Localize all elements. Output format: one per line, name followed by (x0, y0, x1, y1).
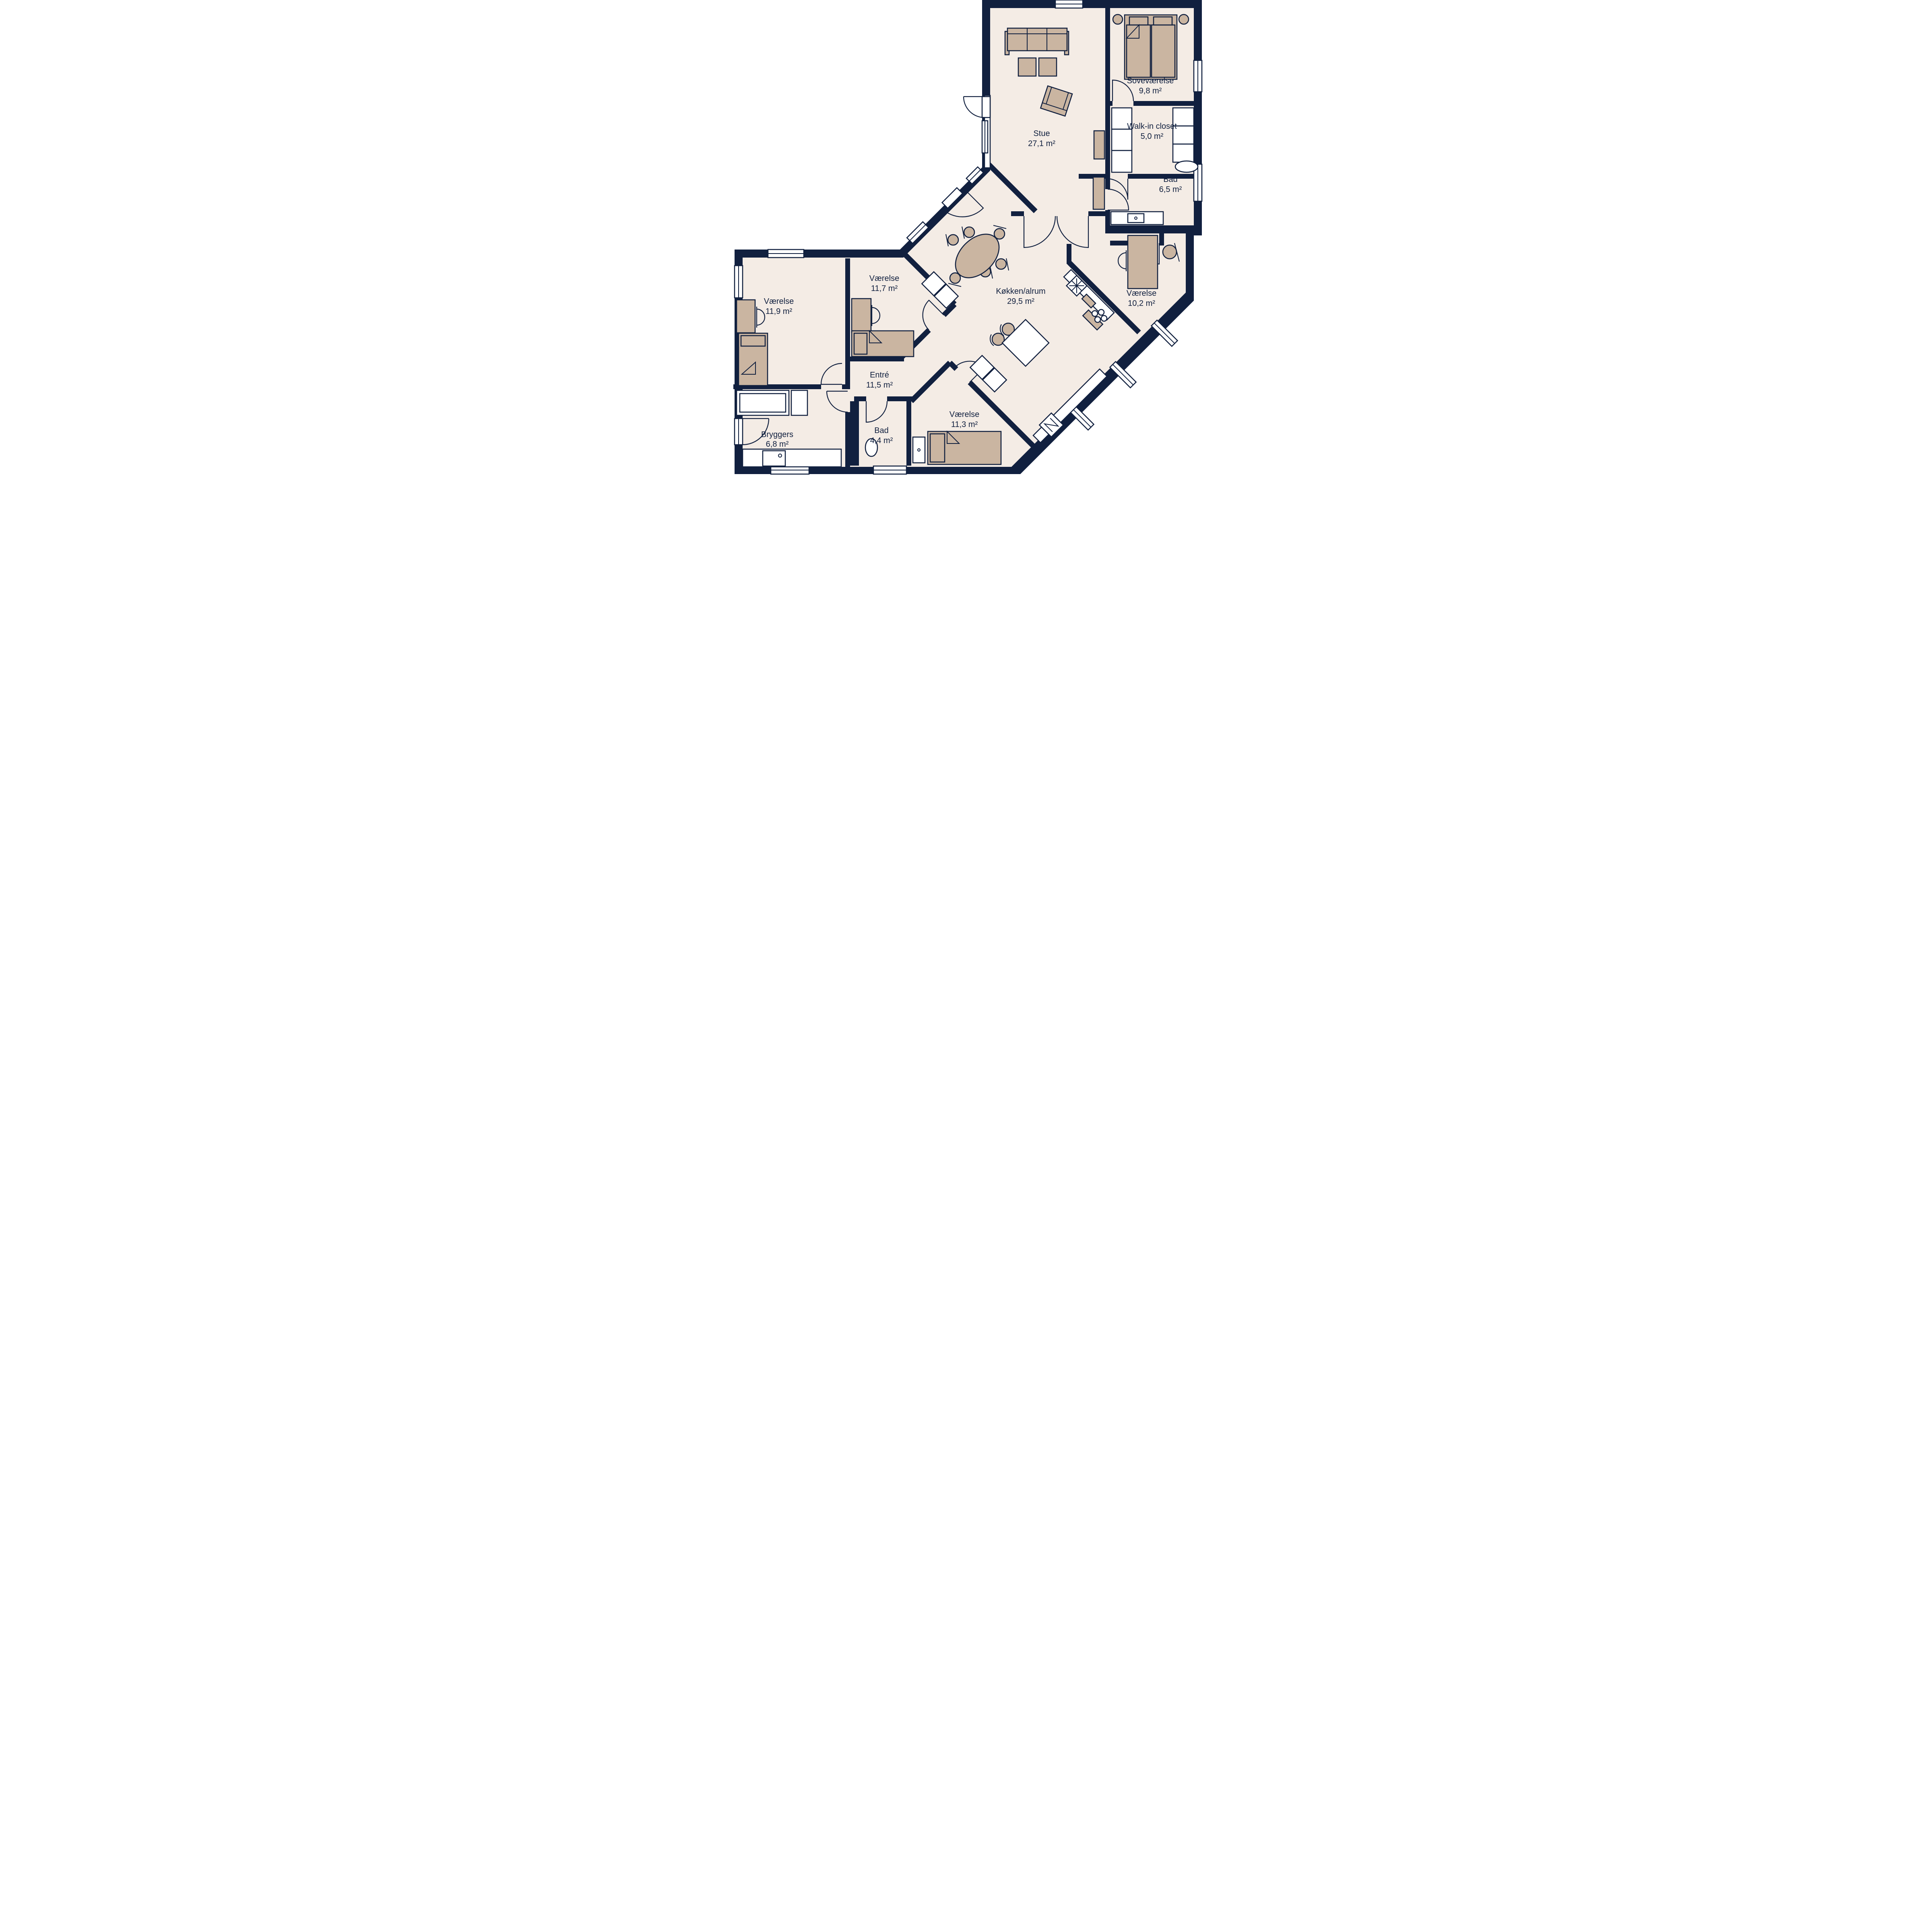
svg-text:11,9 m²: 11,9 m² (766, 307, 793, 316)
window-icon (735, 266, 743, 298)
pouf-symbol (1039, 58, 1057, 76)
svg-text:Bad: Bad (1163, 175, 1178, 184)
svg-text:5,0 m²: 5,0 m² (1141, 132, 1164, 141)
bed-symbol (928, 431, 1001, 464)
svg-text:Bryggers: Bryggers (761, 430, 793, 439)
washbasin-symbol (913, 437, 925, 463)
window-icon (982, 121, 988, 153)
wardrobe-symbol (737, 390, 807, 415)
svg-text:10,2 m²: 10,2 m² (1128, 299, 1155, 308)
window-icon (873, 466, 906, 474)
floor-plan: Stue27,1 m² Soveværelse9,8 m² Walk-in cl… (724, 0, 1207, 476)
svg-text:29,5 m²: 29,5 m² (1007, 297, 1034, 306)
laundry-counter-symbol (743, 449, 841, 467)
svg-text:9,8 m²: 9,8 m² (1139, 87, 1162, 95)
double-bed-symbol (1113, 14, 1189, 79)
cabinet-symbol (1094, 131, 1104, 159)
svg-text:Walk-in closet: Walk-in closet (1127, 122, 1177, 131)
svg-text:11,7 m²: 11,7 m² (871, 284, 898, 293)
vanity-symbol (1111, 212, 1163, 225)
floor-plan-page: Stue27,1 m² Soveværelse9,8 m² Walk-in cl… (0, 0, 1932, 476)
svg-text:Stue: Stue (1033, 129, 1050, 138)
svg-text:4,4 m²: 4,4 m² (870, 436, 893, 445)
svg-text:Værelse: Værelse (1127, 289, 1156, 298)
svg-text:6,8 m²: 6,8 m² (766, 440, 789, 449)
pouf-symbol (1018, 58, 1036, 76)
svg-text:Entré: Entré (870, 371, 889, 380)
cabinet-symbol (1093, 177, 1104, 209)
window-icon (1055, 0, 1083, 8)
window-icon (1194, 60, 1202, 92)
svg-text:Soveværelse: Soveværelse (1127, 76, 1174, 85)
svg-text:Værelse: Værelse (869, 274, 899, 283)
bed-symbol (852, 331, 914, 357)
svg-text:Køkken/alrum: Køkken/alrum (996, 287, 1045, 296)
window-icon (768, 250, 804, 258)
svg-text:11,5 m²: 11,5 m² (866, 381, 893, 390)
washing-machine-symbol (763, 451, 785, 466)
svg-text:Værelse: Værelse (764, 297, 794, 306)
toilet-icon (1175, 161, 1198, 172)
svg-text:11,3 m²: 11,3 m² (951, 420, 978, 429)
svg-text:6,5 m²: 6,5 m² (1159, 185, 1182, 194)
terrace-door-icon (964, 97, 990, 118)
bed-symbol (739, 333, 768, 386)
svg-text:Værelse: Værelse (949, 410, 979, 419)
svg-text:27,1 m²: 27,1 m² (1028, 139, 1055, 148)
sofa-symbol (1005, 28, 1069, 55)
svg-text:Bad: Bad (874, 426, 889, 435)
